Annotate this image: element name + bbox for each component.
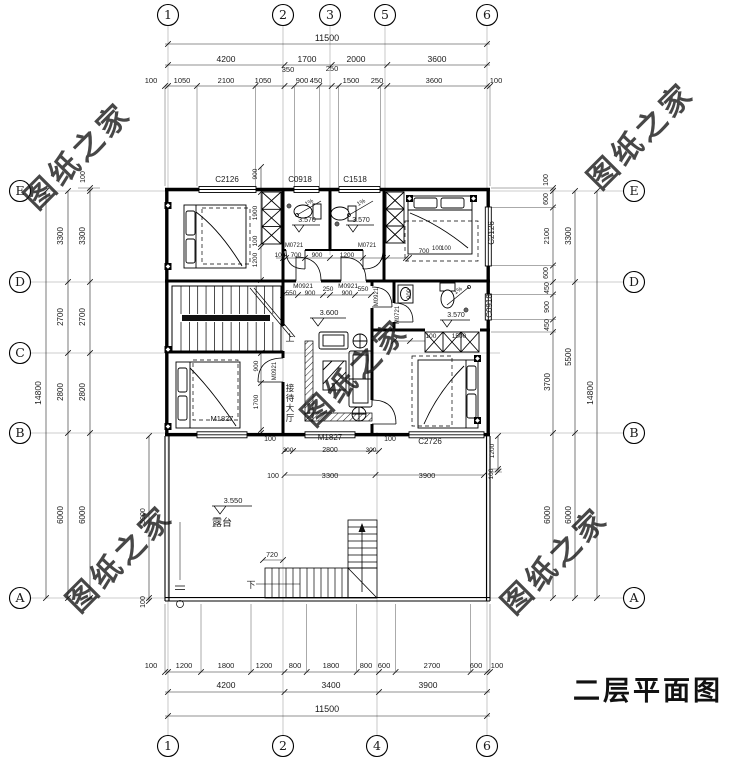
annotation-label: 700 <box>419 248 430 255</box>
wardrobe-bedroom1 <box>262 192 281 244</box>
annotation-label: 100 <box>264 436 276 443</box>
grid-bubble: 2 <box>273 736 294 757</box>
annotation-label: 6000 <box>56 506 65 524</box>
annotation-label: 600 <box>378 661 391 670</box>
annotation-label: 1200 <box>252 252 259 267</box>
annotation-label: 100 <box>145 76 158 85</box>
svg-text:2: 2 <box>279 7 287 22</box>
floor-plan-svg: 1150042001700200036001001050210010503509… <box>0 0 750 772</box>
annotation-label: 300 <box>283 447 294 454</box>
annotation-label: 450 <box>310 76 323 85</box>
annotation-label: 1500 <box>343 76 360 85</box>
column-marker <box>406 195 413 202</box>
grid-bubble: 3 <box>320 5 341 26</box>
annotation-label: 3.600 <box>320 308 339 317</box>
annotation-label: 4200 <box>217 54 236 64</box>
annotation-label: 11500 <box>315 33 339 43</box>
grid-bubble: 2 <box>273 5 294 26</box>
annotation-label: 100 <box>140 596 147 608</box>
svg-text:B: B <box>629 425 638 440</box>
annotation-label: 3600 <box>426 76 443 85</box>
bed-top-left <box>184 205 250 268</box>
annotation-label: 900 <box>342 290 353 297</box>
annotation-label: M1827 <box>318 433 343 442</box>
door-m0721-bath-b <box>363 250 383 269</box>
annotation-label: 3.570 <box>298 217 316 224</box>
column-marker <box>470 195 477 202</box>
window-c0918-north <box>294 187 319 193</box>
annotation-label: 100 <box>384 436 396 443</box>
annotation-label: 600 <box>470 661 483 670</box>
stair-direction-arrow <box>359 523 366 532</box>
watermark: 图纸之家 <box>581 76 701 196</box>
svg-text:D: D <box>15 274 25 289</box>
column-marker <box>165 202 172 209</box>
svg-text:1: 1 <box>164 738 172 753</box>
annotation-label: M0721 <box>358 243 377 249</box>
annotation-label: 3700 <box>543 373 552 391</box>
annotation-label: 3400 <box>322 680 341 690</box>
floor-plan-sheet: 1150042001700200036001001050210010503509… <box>0 0 750 772</box>
grid-bubble: C <box>10 343 31 364</box>
annotation-label: 900 <box>253 360 260 371</box>
annotation-label: 3300 <box>78 227 87 245</box>
grid-bubble: 4 <box>367 736 388 757</box>
annotation-label: 6000 <box>78 506 87 524</box>
annotation-label: 11500 <box>315 704 339 714</box>
annotation-label: 接待大厅 <box>286 383 295 423</box>
annotation-label: 100 <box>145 661 158 670</box>
door-m0921-bedroom3 <box>258 358 283 382</box>
annotation-label: C0918 <box>485 294 494 318</box>
annotation-label: 800 <box>360 661 373 670</box>
svg-text:6: 6 <box>483 7 491 22</box>
rain-pipe <box>175 522 185 608</box>
grid-bubble: 1 <box>158 5 179 26</box>
annotation-label: 100 <box>488 468 495 479</box>
annotation-label: 14800 <box>585 381 595 405</box>
annotation-label: 4200 <box>217 680 236 690</box>
annotation-label: C2126 <box>487 221 496 245</box>
annotation-label: 550 <box>286 290 297 297</box>
door-m0921-bath-left <box>296 257 321 281</box>
annotation-label: 250 <box>326 64 339 73</box>
svg-text:1: 1 <box>164 7 172 22</box>
annotation-label: 3300 <box>322 471 339 480</box>
annotation-label: 2700 <box>56 308 65 326</box>
annotation-label: 2100 <box>218 76 235 85</box>
grid-bubble: 6 <box>477 736 498 757</box>
grid-bubble: B <box>10 423 31 444</box>
svg-text:D: D <box>629 274 639 289</box>
annotation-label: 1200 <box>489 443 496 458</box>
bed-bottom-right <box>412 356 478 428</box>
annotation-label: 1500 <box>452 333 467 340</box>
annotation-label: 2800 <box>56 383 65 401</box>
annotation-label: 3.570 <box>447 312 465 319</box>
annotation-label: 14800 <box>33 381 43 405</box>
stairs-interior <box>172 286 295 351</box>
annotation-label: 350 <box>282 65 295 74</box>
column-marker <box>474 355 481 362</box>
grid-bubble: D <box>624 272 645 293</box>
annotation-label: 300 <box>366 447 377 454</box>
annotation-label: 1700 <box>253 394 260 409</box>
svg-text:B: B <box>15 425 24 440</box>
annotation-label: 1200 <box>176 661 193 670</box>
annotation-label: C1518 <box>343 175 367 184</box>
grid-bubble: D <box>10 272 31 293</box>
annotation-label: 100 <box>441 246 452 252</box>
annotation-label: 上 <box>285 333 294 343</box>
annotation-label: 600 <box>543 267 550 279</box>
wardrobe-bedroom2 <box>386 192 404 243</box>
annotation-label: 900 <box>407 288 413 299</box>
annotation-label: C2726 <box>418 437 442 446</box>
annotation-label: 900 <box>312 252 323 259</box>
annotation-label: 2700 <box>78 308 87 326</box>
annotation-label: 100 <box>267 473 279 480</box>
annotation-label: 550 <box>358 286 369 293</box>
door-m0921-bath-right <box>341 257 366 281</box>
door-window-m1827-left <box>197 432 247 438</box>
annotation-label: 450 <box>544 319 551 331</box>
annotation-label: 1050 <box>255 76 272 85</box>
column-marker <box>165 263 172 270</box>
window-c2126-north <box>199 187 256 193</box>
annotation-label: 1050 <box>174 76 191 85</box>
svg-text:6: 6 <box>483 738 491 753</box>
watermark: 图纸之家 <box>18 96 138 216</box>
annotation-label: 1800 <box>218 661 235 670</box>
grid-bubble: A <box>10 588 31 609</box>
annotation-label: 720 <box>266 552 278 559</box>
column-marker <box>165 346 172 353</box>
annotation-label: 600 <box>543 193 550 205</box>
annotation-label: 3300 <box>564 227 573 245</box>
annotation-label: 1900 <box>252 205 259 220</box>
annotation-label: 450 <box>544 282 551 294</box>
annotation-label: 2100 <box>542 228 551 245</box>
svg-text:C: C <box>15 345 25 360</box>
annotation-label: 900 <box>296 76 309 85</box>
annotation-label: 3.570 <box>352 217 370 224</box>
drawing-title: 二层平面图 <box>573 676 723 706</box>
svg-text:2: 2 <box>279 738 287 753</box>
annotation-label: 900 <box>305 290 316 297</box>
door-bedroom4 <box>372 400 396 424</box>
annotation-label: 900 <box>544 301 551 313</box>
annotation-label: 900 <box>252 168 259 179</box>
column-marker <box>474 417 481 424</box>
annotation-label: 100 <box>490 76 503 85</box>
annotation-label: 露台 <box>212 516 232 529</box>
annotation-label: 2000 <box>347 54 366 64</box>
svg-text:A: A <box>628 590 639 605</box>
annotation-label: 1800 <box>323 661 340 670</box>
annotation-label: 100 <box>252 235 259 246</box>
svg-text:3: 3 <box>326 7 334 22</box>
grid-bubble: 5 <box>375 5 396 26</box>
annotation-label: 100 <box>491 661 504 670</box>
annotation-label: M0921 <box>293 283 313 290</box>
annotation-label: C2126 <box>215 175 239 184</box>
svg-text:5: 5 <box>381 7 389 22</box>
grid-bubble: 1 <box>158 736 179 757</box>
annotation-label: M0921 <box>338 283 358 290</box>
annotation-label: C0918 <box>288 175 312 184</box>
annotation-label: 3300 <box>56 227 65 245</box>
annotation-label: 3600 <box>428 54 447 64</box>
annotation-label: 3.550 <box>224 496 243 505</box>
annotation-label: M0721 <box>285 243 304 249</box>
column-marker <box>165 423 172 430</box>
grid-bubble: A <box>624 588 645 609</box>
annotation-label: 1200 <box>256 661 273 670</box>
annotation-label: 5500 <box>564 348 573 366</box>
window-c1518-north <box>339 187 380 193</box>
annotation-label: 800 <box>289 661 302 670</box>
svg-text:A: A <box>14 590 25 605</box>
annotation-label: M1827 <box>211 414 234 423</box>
annotation-label: 250 <box>371 76 384 85</box>
grid-bubble: E <box>624 181 645 202</box>
grid-bubble: 6 <box>477 5 498 26</box>
annotation-label: 250 <box>323 286 334 293</box>
annotation-label: 1700 <box>298 54 317 64</box>
svg-text:4: 4 <box>373 738 381 753</box>
annotation-label: 700 <box>291 252 302 259</box>
annotation-label: 3900 <box>419 471 436 480</box>
watermark-layer: 图纸之家图纸之家图纸之家图纸之家图纸之家 <box>18 76 701 621</box>
annotation-label: 100 <box>275 252 286 259</box>
annotation-label: 2800 <box>78 383 87 401</box>
annotation-label: 1200 <box>340 252 355 259</box>
svg-text:E: E <box>629 183 638 198</box>
grid-bubble: B <box>624 423 645 444</box>
annotation-label: 下 <box>246 580 255 590</box>
annotation-label: M0921 <box>272 361 278 380</box>
annotation-label: 6000 <box>543 506 552 524</box>
annotation-label: 2800 <box>322 447 338 454</box>
annotation-label: M0921 <box>374 287 380 306</box>
annotation-label: 100 <box>543 174 550 186</box>
stairs-terrace <box>256 520 377 598</box>
annotation-label: 100 <box>426 333 437 340</box>
annotation-label: 3900 <box>419 680 438 690</box>
annotation-label: 1% <box>356 198 367 208</box>
annotation-label: 2700 <box>424 661 441 670</box>
